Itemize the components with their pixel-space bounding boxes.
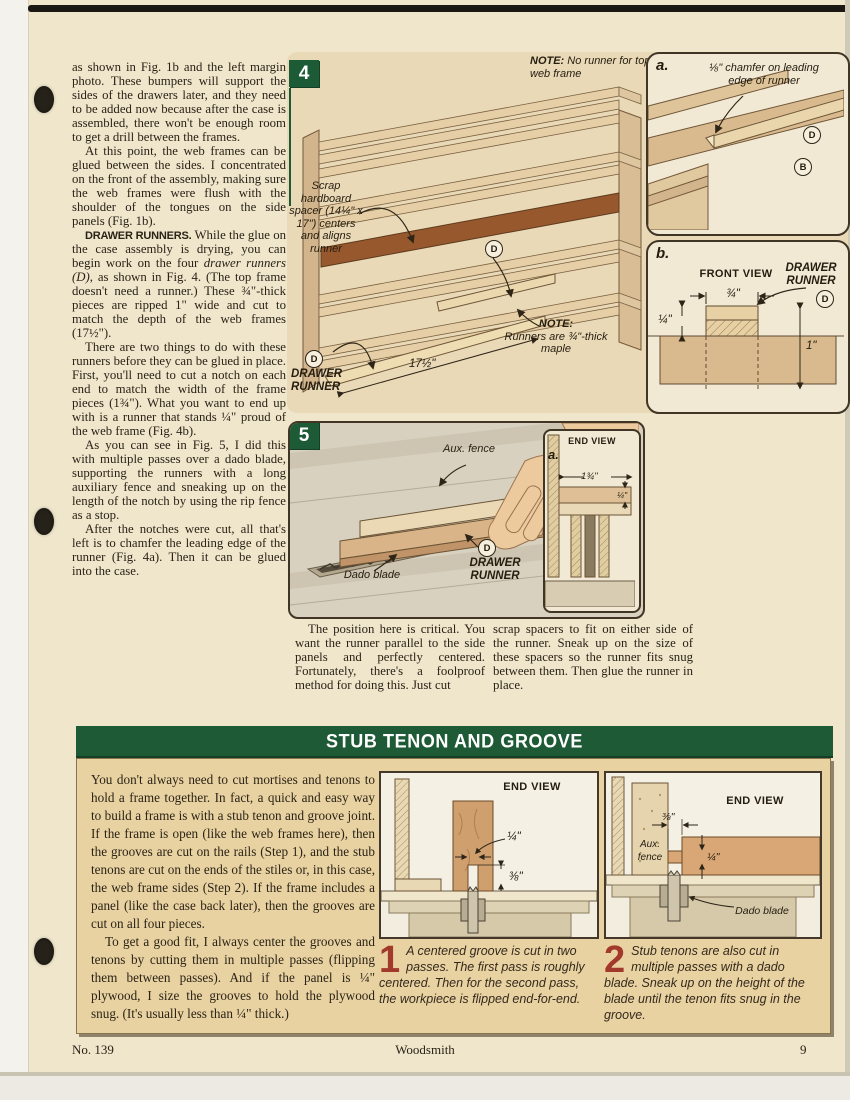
dado-blade-label: Dado blade: [730, 905, 794, 918]
sidebar-body: You don't always need to cut mortises an…: [76, 758, 831, 1034]
dim-three-quarter: ¾": [720, 288, 746, 300]
front-view-label: FRONT VIEW: [682, 268, 790, 280]
paragraph: After the notches were cut, all that's l…: [72, 522, 286, 578]
sidebar-text: You don't always need to cut mortises an…: [91, 771, 375, 1023]
chamfer-note: ⅛" chamfer on leading edge of runner: [700, 62, 828, 87]
dado-blade-label: Dado blade: [342, 569, 402, 582]
paragraph: You don't always need to cut mortises an…: [91, 771, 375, 933]
dim-groove-width: ¼": [507, 831, 521, 843]
figure-4: 4 NOTE: No runner for top web frame Scra…: [287, 52, 848, 413]
fig5-detail-a: a. END VIEW 1¾" ¼": [543, 429, 641, 613]
sidebar-step-1: END VIEW ¼" ⅜" 1 A centered groove is cu…: [379, 771, 599, 1023]
end-view-label: END VIEW: [477, 781, 587, 793]
fig4-length-dim: 17½": [409, 358, 435, 370]
right-text-column: scrap spacers to fit on either side of t…: [493, 622, 693, 692]
fig4-runner-label: DRAWER RUNNER: [291, 368, 381, 393]
part-label-d-icon: D: [485, 240, 503, 258]
part-label-d-icon: D: [478, 539, 496, 557]
detail-b-runner-label: DRAWER RUNNER: [776, 262, 846, 287]
dim-quarter: ¼": [658, 314, 672, 326]
fig4-detail-a: a. ⅛" chamfer on leading edge of runner …: [646, 52, 850, 236]
step1-caption: 1 A centered groove is cut in two passes…: [379, 943, 597, 1007]
part-label-d-icon: D: [816, 290, 834, 308]
fig5-runner-label: DRAWER RUNNER: [452, 557, 538, 582]
scan-bottom-edge: [0, 1072, 850, 1100]
dim-tenon-length: ⅜": [662, 811, 674, 823]
stub-tenon-sidebar: STUB TENON AND GROOVE You don't always n…: [76, 726, 833, 1036]
aux-fence-label: Aux. fence: [628, 839, 672, 864]
detail-b-tag: b.: [656, 246, 669, 261]
step1-drawing: [381, 773, 597, 937]
detail-a-tag: a.: [548, 447, 559, 462]
fig4-detail-b-drawing: [648, 270, 844, 408]
step2-figure: END VIEW Aux. fence ⅜" ¼" Dado blade: [604, 771, 822, 939]
part-label-d-icon: D: [803, 126, 821, 144]
left-text-column: as shown in Fig. 1b and the left margin …: [72, 60, 286, 578]
sidebar-title: STUB TENON AND GROOVE: [326, 730, 583, 753]
part-label-b-icon: B: [794, 158, 812, 176]
sidebar-header: STUB TENON AND GROOVE: [76, 726, 833, 756]
paragraph: The position here is critical. You want …: [295, 622, 485, 692]
paragraph: To get a good fit, I always center the g…: [91, 933, 375, 1023]
paragraph: DRAWER RUNNERS. While the glue on the ca…: [72, 228, 286, 340]
paragraph: as shown in Fig. 1b and the left margin …: [72, 60, 286, 144]
paragraph: scrap spacers to fit on either side of t…: [493, 622, 693, 692]
part-label-d-icon: D: [305, 350, 323, 368]
fig4-spacer-label: Scrap hardboard spacer (14¼" x 17") cent…: [287, 180, 365, 255]
fig4-note-top: NOTE: No runner for top web frame: [530, 55, 662, 80]
figure-5: 5 Aux. fence Dado blade D DRAWER RUNNER: [288, 421, 645, 619]
scan-top-edge: [28, 5, 850, 12]
sidebar-step-2: END VIEW Aux. fence ⅜" ¼" Dado blade 2 S…: [604, 771, 822, 1023]
figure-5-number: 5: [289, 422, 319, 449]
end-view-label: END VIEW: [545, 435, 639, 447]
dim-quarter: ¼": [617, 489, 627, 501]
step2-caption: 2 Stub tenons are also cut in multiple p…: [604, 943, 820, 1023]
dim-tenon-thickness: ¼": [707, 851, 719, 863]
paragraph: There are two things to do with these ru…: [72, 340, 286, 438]
step2-number: 2: [604, 945, 625, 975]
detail-a-tag: a.: [656, 58, 669, 73]
end-view-label: END VIEW: [700, 795, 810, 807]
figure-4-number: 4: [289, 60, 319, 87]
punch-hole-icon: [34, 938, 54, 965]
magazine-page: as shown in Fig. 1b and the left margin …: [0, 0, 850, 1100]
punch-hole-icon: [34, 508, 54, 535]
step1-number: 1: [379, 945, 400, 975]
dim-one-inch: 1": [806, 340, 816, 352]
paragraph: At this point, the web frames can be glu…: [72, 144, 286, 228]
paragraph-lead: DRAWER RUNNERS.: [85, 230, 191, 242]
step1-figure: END VIEW ¼" ⅜": [379, 771, 599, 939]
footer-page-number: 9: [800, 1042, 807, 1058]
fig4-detail-b: b. FRONT VIEW DRAWER RUNNER D ¾" ¼" 1": [646, 240, 850, 414]
punch-hole-icon: [34, 86, 54, 113]
dim-groove-depth: ⅜": [509, 871, 523, 883]
fig4-note-runner: NOTE:Runners are ¾"-thick maple: [499, 318, 613, 356]
dim-one-three-quarter: 1¾": [581, 471, 598, 483]
footer-magazine-title: Woodsmith: [0, 1042, 850, 1058]
aux-fence-label: Aux. fence: [440, 443, 498, 456]
paragraph: As you can see in Fig. 5, I did this wit…: [72, 438, 286, 522]
middle-text-column: The position here is critical. You want …: [295, 622, 485, 692]
